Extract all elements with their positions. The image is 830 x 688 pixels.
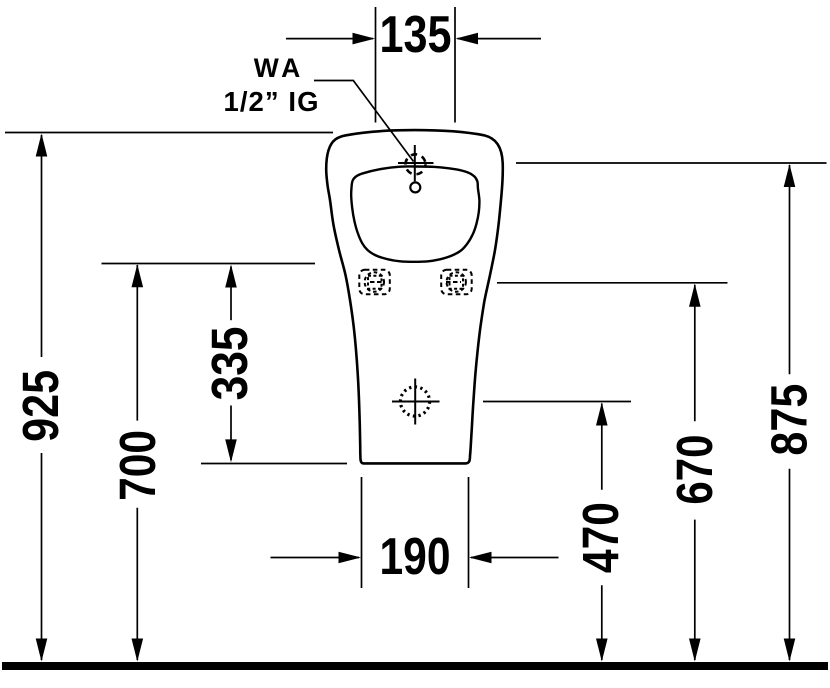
svg-text:875: 875 bbox=[760, 384, 817, 456]
svg-text:190: 190 bbox=[380, 528, 451, 586]
svg-text:335: 335 bbox=[201, 326, 258, 400]
svg-text:135: 135 bbox=[380, 6, 452, 64]
svg-text:470: 470 bbox=[572, 502, 629, 573]
svg-text:670: 670 bbox=[666, 435, 723, 505]
svg-text:925: 925 bbox=[12, 370, 69, 442]
svg-text:1/2” IG: 1/2” IG bbox=[224, 86, 319, 117]
svg-text:700: 700 bbox=[109, 430, 166, 501]
svg-text:WA: WA bbox=[254, 53, 301, 83]
